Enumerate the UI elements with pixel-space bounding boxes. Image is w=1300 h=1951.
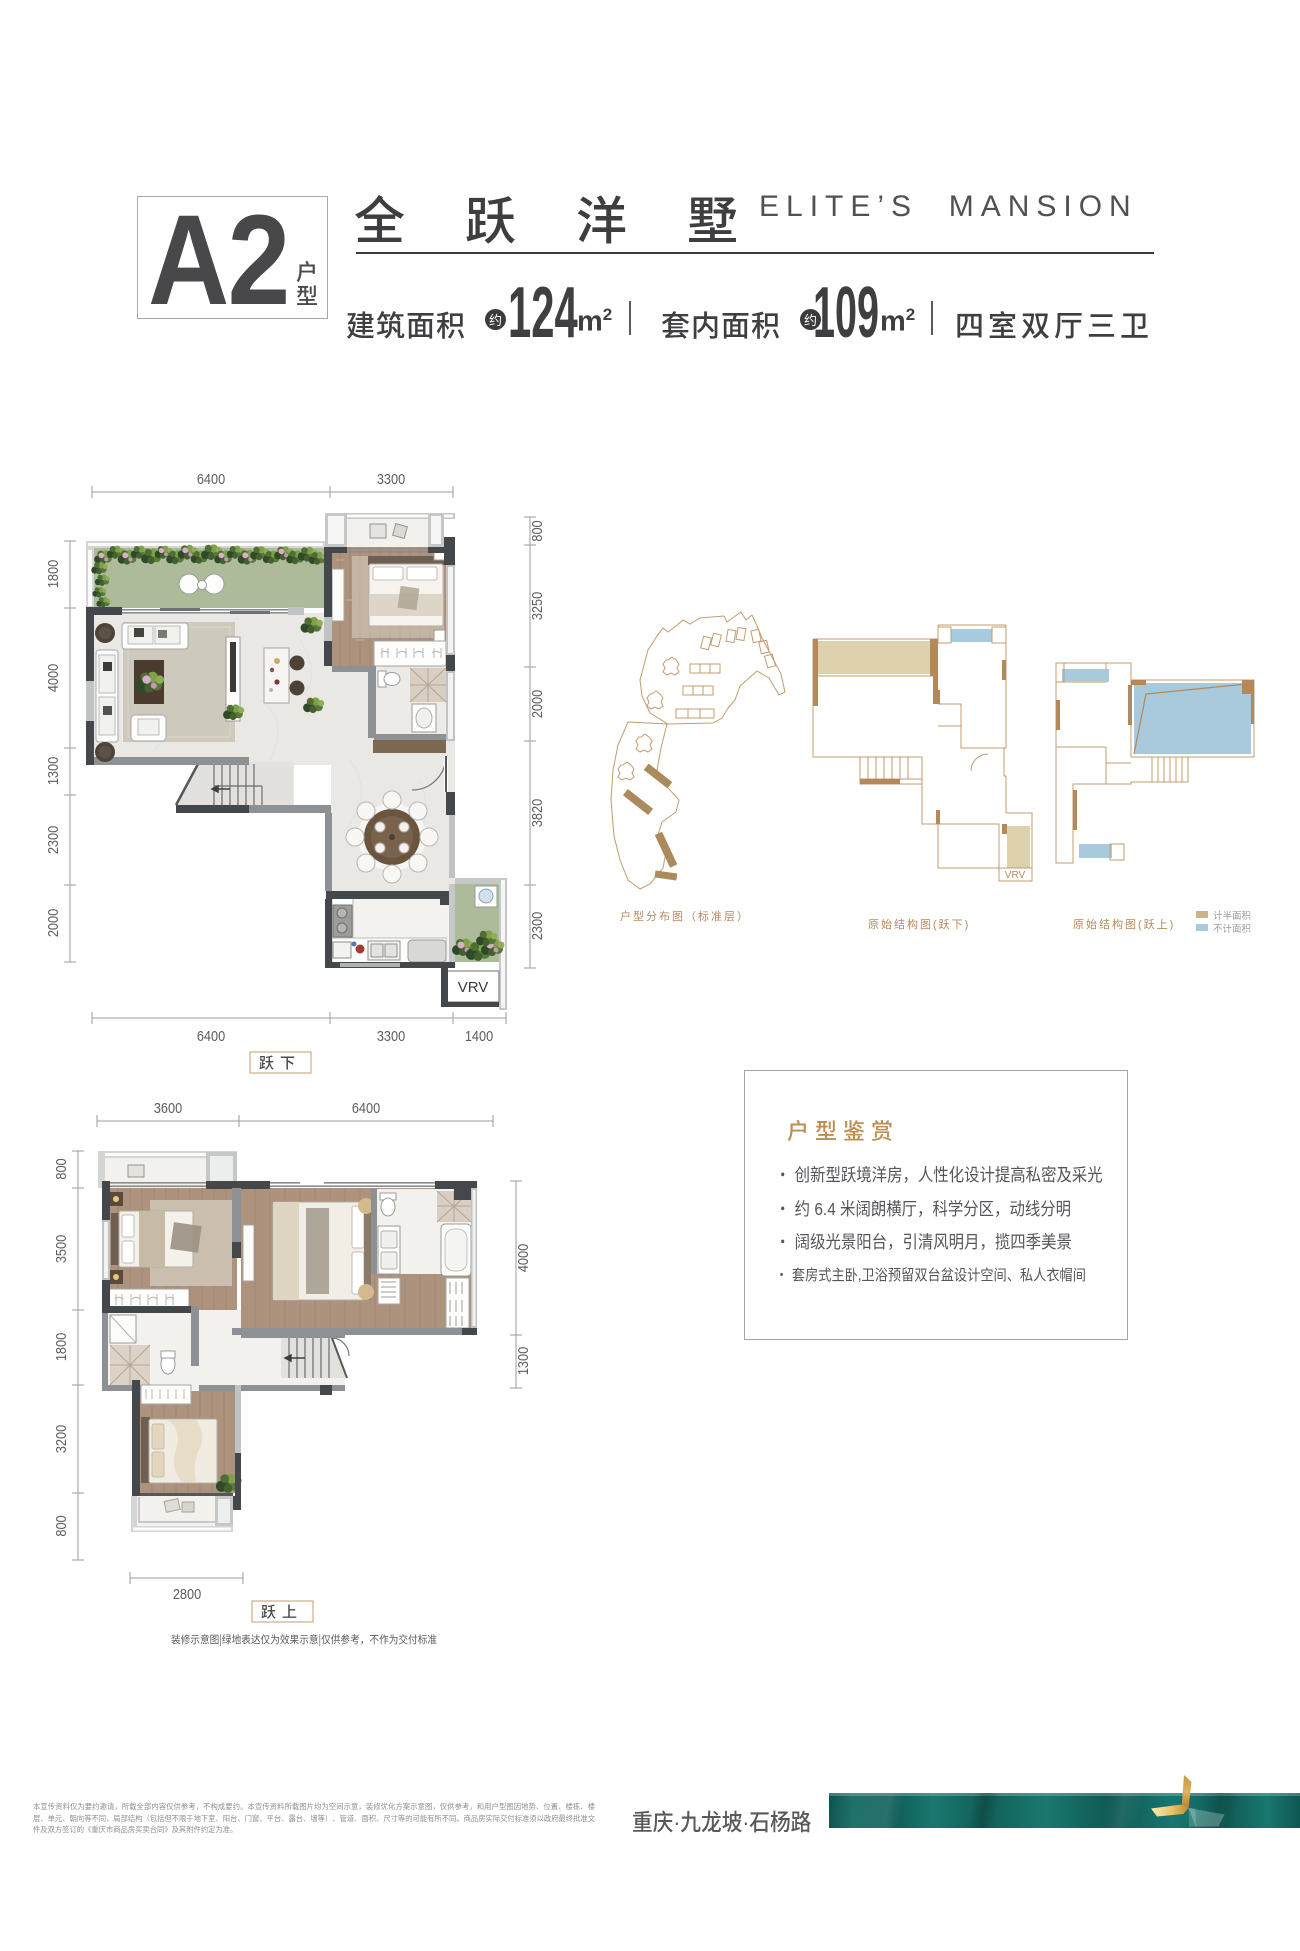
svg-text:3500: 3500 <box>52 1235 69 1264</box>
svg-text:3600: 3600 <box>154 1099 183 1116</box>
svg-text:跃上: 跃上 <box>261 1601 303 1622</box>
svg-text:2300: 2300 <box>528 912 545 941</box>
svg-text:不计面积: 不计面积 <box>1213 921 1252 935</box>
svg-text:1300: 1300 <box>514 1347 531 1376</box>
svg-text:2800: 2800 <box>173 1585 202 1602</box>
svg-text:户型分布图（标准层）: 户型分布图（标准层） <box>620 908 750 924</box>
svg-text:原始结构图(跃上): 原始结构图(跃上) <box>1073 916 1175 932</box>
svg-text:原始结构图(跃下): 原始结构图(跃下) <box>868 916 970 932</box>
svg-text:6400: 6400 <box>197 470 226 487</box>
svg-text:1400: 1400 <box>465 1027 494 1044</box>
svg-text:800: 800 <box>52 1515 69 1536</box>
svg-text:6400: 6400 <box>197 1027 226 1044</box>
svg-text:VRV: VRV <box>458 979 489 996</box>
svg-text:3200: 3200 <box>52 1425 69 1454</box>
svg-text:800: 800 <box>52 1158 69 1179</box>
svg-text:1300: 1300 <box>44 757 61 786</box>
svg-text:2000: 2000 <box>528 690 545 719</box>
svg-text:2300: 2300 <box>44 826 61 855</box>
svg-text:3820: 3820 <box>528 799 545 828</box>
svg-text:4000: 4000 <box>44 664 61 693</box>
svg-text:6400: 6400 <box>352 1099 381 1116</box>
svg-text:3300: 3300 <box>377 470 406 487</box>
svg-text:1800: 1800 <box>52 1333 69 1362</box>
svg-text:3250: 3250 <box>528 592 545 621</box>
svg-text:3300: 3300 <box>377 1027 406 1044</box>
svg-text:VRV: VRV <box>1005 870 1026 881</box>
svg-text:800: 800 <box>528 520 545 541</box>
svg-text:4000: 4000 <box>514 1244 531 1273</box>
svg-text:计半面积: 计半面积 <box>1213 908 1252 922</box>
svg-text:跃下: 跃下 <box>259 1052 301 1073</box>
svg-text:1800: 1800 <box>44 560 61 589</box>
svg-text:2000: 2000 <box>44 909 61 938</box>
